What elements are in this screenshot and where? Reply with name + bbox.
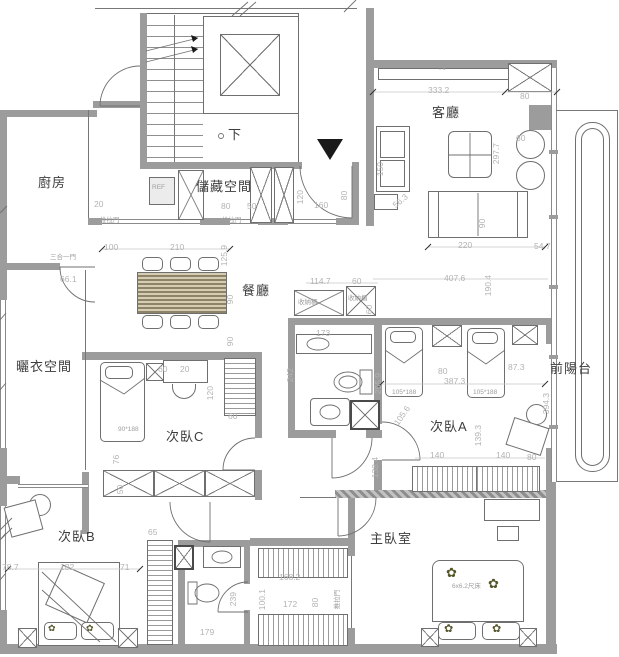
dimension-label: 168.2: [279, 573, 300, 582]
wall: [255, 352, 262, 438]
flower-icon: ✿: [492, 624, 501, 635]
partition-line: [85, 270, 86, 470]
floor-plan: 廚房儲藏空間客廳餐廳曬衣空間次臥C次臥A次臥B主臥室前陽台下TVREF333.2…: [0, 0, 619, 657]
toilet-bowl-inner: [339, 376, 357, 388]
dimension-label: 172: [283, 600, 297, 609]
dimension-label: 20: [180, 365, 189, 374]
armchair-cushion: [380, 131, 405, 158]
room-label: 廚房: [38, 176, 66, 189]
dimension-label: 60: [228, 412, 237, 421]
wall: [348, 628, 355, 645]
dimension-label: 90: [478, 219, 487, 228]
coffee-table: [448, 131, 492, 178]
window-mullion: [549, 215, 558, 219]
dimension-label: 6x6.2尺床: [452, 584, 481, 591]
wall: [0, 110, 97, 117]
dimension-label: 140: [430, 451, 444, 460]
sliding-door: [351, 556, 352, 628]
sofa-armrest: [517, 191, 528, 238]
desk: [484, 499, 540, 521]
dimension-label: 推拉門: [335, 590, 342, 610]
room-label: 次臥B: [58, 530, 96, 543]
toilet-bowl: [195, 584, 219, 602]
dimension-label: 65: [148, 528, 157, 537]
kitchen-counter: [88, 110, 89, 218]
flower-icon: ✿: [488, 577, 499, 590]
dimension-label: 100.1: [258, 589, 267, 610]
dining-chair: [170, 315, 191, 329]
dimension-label: 54.7: [534, 242, 551, 251]
dimension-label: 90: [226, 295, 235, 304]
closet: [103, 470, 154, 497]
dimension-label: 140: [496, 451, 510, 460]
nightstand: [118, 628, 138, 648]
vanity-counter: [296, 334, 372, 354]
dimension-label: 239: [229, 592, 238, 606]
wall: [244, 540, 250, 584]
window: [0, 300, 6, 448]
dimension-label: 80: [527, 453, 536, 462]
dimension-label: 173: [316, 329, 330, 338]
boundary-line: [95, 8, 357, 9]
dimension-label: 60: [158, 365, 167, 374]
dimension-label: 收納櫃: [348, 296, 368, 303]
dining-chair: [198, 315, 219, 329]
dimension-label: 推拉門: [100, 218, 120, 225]
dimension-label: 242: [286, 368, 295, 382]
wall: [352, 162, 359, 225]
wall: [82, 472, 89, 534]
stair-door-arc: [100, 66, 140, 106]
window-mullion: [549, 285, 558, 289]
wall: [0, 110, 7, 300]
window: [0, 506, 6, 610]
pipe-shaft: [174, 545, 194, 570]
dining-chair: [142, 257, 163, 271]
dimension-label: 394.3: [542, 393, 551, 414]
stool: [516, 161, 545, 190]
room-label: 儲藏空間: [196, 180, 252, 193]
room-label: 次臥C: [166, 430, 204, 443]
dimension-label: 139.3: [474, 425, 483, 446]
toilet-tank: [188, 582, 197, 604]
room-label: 客廳: [432, 106, 460, 119]
dimension-label: 125.9: [220, 245, 229, 266]
dimension-label: 105.6: [393, 404, 412, 426]
toilet-bowl: [334, 372, 362, 392]
dimension-label: 150: [376, 162, 385, 176]
wall: [288, 430, 336, 438]
nightstand: [18, 628, 37, 648]
dimension-label: 120: [206, 386, 215, 400]
dimension-label: 297.7: [492, 143, 501, 164]
dimension-label: 333.2: [428, 86, 449, 95]
chair: [497, 526, 519, 541]
dining-chair: [142, 315, 163, 329]
bedroomB-door-arc: [170, 502, 210, 542]
dimension-label: 407.6: [444, 274, 465, 283]
wall: [0, 476, 20, 484]
room-label: 曬衣空間: [16, 360, 72, 373]
closet: [147, 540, 173, 645]
wardrobe: [258, 548, 348, 578]
bedroomC-door-arc: [223, 438, 255, 470]
wall: [0, 263, 60, 270]
wardrobe-divider: [476, 466, 477, 492]
wall: [255, 470, 262, 500]
chair: [172, 384, 196, 399]
nightstand: [512, 325, 538, 345]
dimension-label: 收納櫃: [298, 300, 318, 307]
nightstand: [519, 628, 537, 647]
sliding-door: [288, 219, 336, 224]
dimension-label: 138.4: [371, 457, 380, 478]
entry-arrow-icon: [317, 139, 343, 160]
sofa: [428, 191, 528, 238]
dimension-label: TV: [438, 66, 446, 73]
dimension-label: 20: [94, 200, 103, 209]
dimension-label: 三合一門: [50, 255, 76, 262]
room-label: 前陽台: [550, 362, 592, 375]
balcony-railing-inner: [581, 128, 604, 466]
flower-icon: ✿: [446, 566, 457, 579]
dimension-label: 105*188: [473, 390, 497, 397]
dimension-label: 255.9: [374, 373, 383, 394]
window: [551, 68, 557, 482]
balcony-edge: [556, 110, 618, 111]
dimension-label: 179: [200, 628, 214, 637]
dimension-label: 100: [104, 243, 118, 252]
sink: [203, 546, 241, 568]
dimension-label: 80: [438, 367, 447, 376]
dimension-label: 80: [520, 92, 529, 101]
toilet-tank: [360, 370, 372, 394]
wall: [348, 498, 355, 556]
dimension-label: 87.3: [508, 363, 525, 372]
wall: [140, 13, 147, 169]
balcony-edge: [556, 481, 618, 482]
dining-chair: [198, 257, 219, 271]
wall: [244, 610, 250, 645]
dimension-label: 80: [340, 191, 349, 200]
dimension-label: 210: [170, 243, 184, 252]
shoe-cabinet: [274, 167, 294, 223]
bedroomA-door-arc: [382, 422, 420, 460]
elevator-car: [220, 34, 280, 96]
wall: [546, 478, 556, 644]
wall: [93, 101, 145, 108]
dimension-label: 推拉門: [222, 218, 242, 225]
dimension-label: 78.7: [2, 563, 19, 572]
dimension-label: 60: [352, 277, 361, 286]
sink: [310, 398, 350, 426]
pillow: [105, 366, 133, 379]
dimension-label: 220: [458, 241, 472, 250]
dimension-label: 80: [311, 598, 320, 607]
pillow: [390, 331, 416, 343]
nightstand: [432, 325, 462, 347]
dining-table: [137, 272, 227, 314]
wall: [250, 538, 350, 546]
dimension-label: 182: [60, 563, 74, 572]
room-label: 下: [228, 128, 242, 141]
balcony-edge: [617, 110, 618, 482]
dimension-label: 120: [296, 190, 305, 204]
dimension-label: 76: [112, 455, 121, 464]
laundry-door-arc: [60, 267, 95, 302]
wall: [336, 218, 354, 225]
room-label: 次臥A: [430, 420, 468, 433]
wall: [366, 430, 382, 438]
dimension-label: 105*188: [392, 390, 416, 397]
window-mullion: [549, 355, 558, 359]
nightstand: [421, 628, 439, 647]
dimension-label: REF: [152, 185, 165, 192]
dimension-label: 60: [516, 134, 525, 143]
partition-line: [300, 497, 336, 498]
flower-icon: ✿: [444, 624, 453, 635]
pipe-shaft: [350, 400, 380, 430]
dimension-label: 66.1: [60, 275, 77, 284]
wardrobe: [258, 614, 348, 646]
storage-cabinet: [250, 167, 272, 223]
dimension-label: 71: [120, 563, 129, 572]
closet: [205, 470, 255, 497]
dimension-label: 190.4: [484, 275, 493, 296]
bath-door-arc: [332, 438, 372, 478]
dimension-label: 50: [247, 202, 256, 211]
cabinet: [508, 63, 552, 92]
closet: [154, 470, 205, 497]
dimension-label: 114.7: [310, 277, 331, 286]
window: [18, 484, 88, 488]
wall: [288, 318, 554, 325]
dimension-label: 90: [226, 337, 235, 346]
wardrobe: [224, 358, 256, 416]
storage-cabinet: [178, 170, 204, 220]
flower-icon: ✿: [86, 624, 94, 633]
wall: [366, 8, 374, 226]
pillow: [472, 332, 498, 344]
dimension-label: 90*188: [118, 427, 139, 434]
desk: [505, 417, 549, 456]
window-mullion: [549, 150, 558, 154]
dimension-label: 387.3: [444, 377, 465, 386]
dimension-label: 80: [221, 202, 230, 211]
dimension-label: 160: [314, 201, 328, 210]
dimension-label: 50: [116, 485, 125, 494]
room-label: 主臥室: [370, 532, 412, 545]
flower-icon: ✿: [48, 624, 56, 633]
window-mullion: [549, 425, 558, 429]
room-label: 餐廳: [242, 284, 270, 297]
sofa-armrest: [428, 191, 439, 238]
dimension-label: 60: [365, 305, 374, 314]
dining-chair: [170, 257, 191, 271]
stair-rail: [174, 15, 175, 164]
